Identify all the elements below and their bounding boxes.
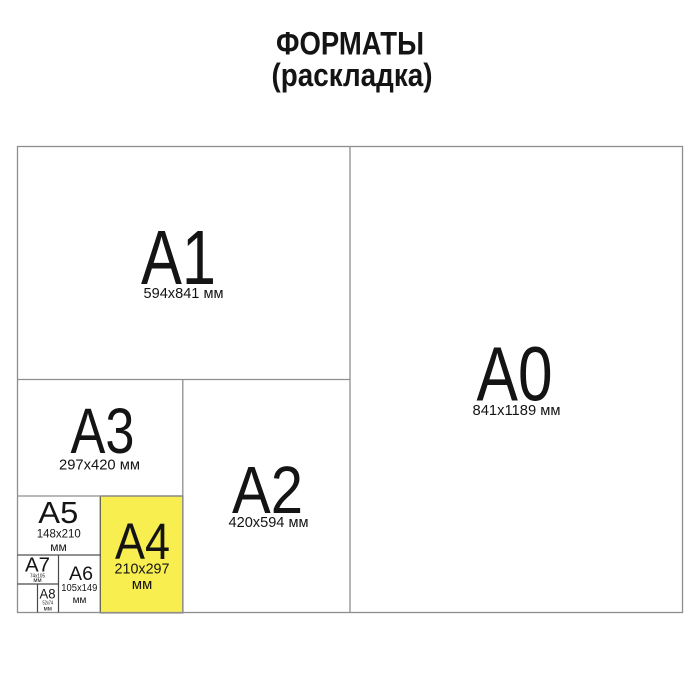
svg-text:297х420 мм: 297х420 мм — [59, 457, 140, 474]
svg-text:ФОРМАТЫ: ФОРМАТЫ — [276, 25, 424, 61]
svg-text:мм: мм — [132, 576, 153, 593]
svg-text:мм: мм — [44, 606, 52, 612]
svg-text:А8: А8 — [40, 587, 56, 602]
svg-text:105х149: 105х149 — [61, 583, 97, 594]
svg-text:148х210: 148х210 — [37, 527, 81, 541]
svg-text:мм: мм — [33, 578, 41, 584]
svg-text:мм: мм — [50, 540, 67, 554]
svg-text:210х297: 210х297 — [115, 561, 170, 578]
svg-text:420х594 мм: 420х594 мм — [229, 514, 309, 531]
svg-text:841х1189 мм: 841х1189 мм — [473, 402, 561, 419]
svg-text:мм: мм — [73, 595, 87, 606]
svg-text:А5: А5 — [38, 495, 78, 530]
svg-text:594х841 мм: 594х841 мм — [144, 285, 224, 302]
svg-text:(раскладка): (раскладка) — [272, 57, 433, 93]
